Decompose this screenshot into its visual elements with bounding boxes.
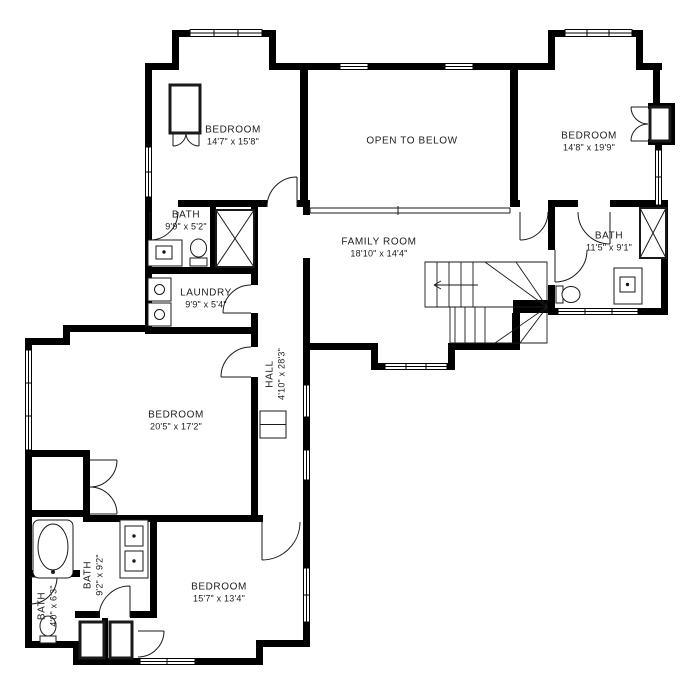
room-name: FAMILY ROOM: [341, 236, 416, 249]
room-name: BATH: [82, 554, 95, 596]
room-dims: 14'8" x 19'9": [561, 143, 617, 155]
room-labels: BEDROOM 14'7" x 15'8" OPEN TO BELOW BEDR…: [0, 0, 697, 691]
room-dims: 14'7" x 15'8": [205, 137, 261, 149]
room-label-bedroom-bottom: BEDROOM 15'7" x 13'4": [191, 581, 247, 606]
room-dims: 9'9" x 5'4": [180, 300, 232, 312]
room-name: BEDROOM: [191, 581, 247, 594]
room-label-bedroom-top-left: BEDROOM 14'7" x 15'8": [205, 124, 261, 149]
room-label-bath-bottom-left: BATH 9'2" x 9'2": [82, 554, 107, 596]
room-label-bath-right: BATH 11'5" x 9'1": [586, 230, 632, 255]
room-dims: 9'2" x 9'2": [95, 554, 107, 596]
room-name: BATH: [165, 209, 207, 222]
room-label-laundry: LAUNDRY 9'9" x 5'4": [180, 287, 232, 312]
room-label-bedroom-top-right: BEDROOM 14'8" x 19'9": [561, 130, 617, 155]
room-label-bedroom-middle-left: BEDROOM 20'5" x 17'2": [148, 409, 204, 434]
room-dims: 11'5" x 9'1": [586, 243, 632, 255]
room-name: OPEN TO BELOW: [366, 135, 457, 148]
room-name: BEDROOM: [205, 124, 261, 137]
room-dims: 15'7" x 13'4": [191, 594, 247, 606]
room-name: BATH: [36, 585, 49, 627]
room-name: HALL: [264, 348, 277, 400]
room-dims: 9'9" x 5'2": [165, 222, 207, 234]
room-dims: 4'10" x 28'3": [277, 348, 289, 400]
room-label-open-to-below: OPEN TO BELOW: [366, 135, 457, 148]
room-label-hall: HALL 4'10" x 28'3": [264, 348, 289, 400]
room-label-bath-top-left: BATH 9'9" x 5'2": [165, 209, 207, 234]
room-label-bath-bottom-corner: BATH 4'0" x 6'3": [36, 585, 61, 627]
room-name: BEDROOM: [148, 409, 204, 422]
room-dims: 18'10" x 14'4": [341, 249, 416, 261]
floor-plan: BEDROOM 14'7" x 15'8" OPEN TO BELOW BEDR…: [0, 0, 697, 691]
room-name: BATH: [586, 230, 632, 243]
room-dims: 4'0" x 6'3": [49, 585, 61, 627]
room-dims: 20'5" x 17'2": [148, 422, 204, 434]
room-label-family-room: FAMILY ROOM 18'10" x 14'4": [341, 236, 416, 261]
room-name: LAUNDRY: [180, 287, 232, 300]
room-name: BEDROOM: [561, 130, 617, 143]
